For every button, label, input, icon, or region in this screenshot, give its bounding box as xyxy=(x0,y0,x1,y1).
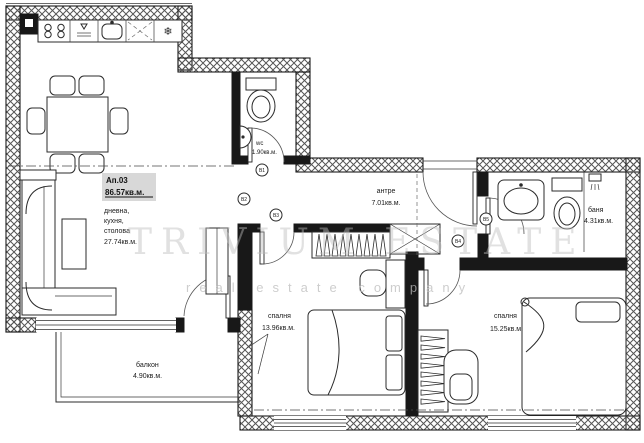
apartment-number: Ап.03 xyxy=(106,176,128,185)
bedroom1-name: спалня xyxy=(268,313,291,320)
living-room-name-1: дневна, xyxy=(104,208,129,215)
living-room-name-2: кухня, xyxy=(104,218,124,225)
marker-b1: В1 xyxy=(259,168,265,174)
chair xyxy=(110,108,128,134)
watermark-line1: TRIVIUM ESTATE xyxy=(128,222,586,263)
coffee-table xyxy=(62,219,86,269)
balcony-area: 4.90кв.м. xyxy=(133,373,162,380)
entrance-door xyxy=(423,161,477,226)
shower-head-icon xyxy=(589,174,601,190)
living-balcony-window xyxy=(36,318,176,332)
wc-room xyxy=(240,78,276,148)
marker-b2: В2 xyxy=(241,197,247,203)
watermark-line2: real estate company xyxy=(186,280,474,295)
windows xyxy=(36,318,576,430)
wc-door xyxy=(248,128,284,162)
apartment-total-area: 86.57кв.м. xyxy=(105,188,144,197)
bedroom2-name: спалня xyxy=(494,313,517,320)
bedroom2-window xyxy=(488,416,576,430)
bathroom-sink-icon xyxy=(498,180,544,220)
chair xyxy=(79,76,104,95)
bedroom2-furniture xyxy=(444,298,626,415)
bath-area: 4.31кв.м. xyxy=(584,218,613,225)
bedroom1-area: 13.96кв.м. xyxy=(262,325,295,332)
floor-plan-image: ❄ xyxy=(0,0,644,443)
armchair xyxy=(444,350,478,404)
balcony-name: балкон xyxy=(136,361,159,369)
chair xyxy=(50,76,75,95)
bath-name: баня xyxy=(588,206,604,214)
bed xyxy=(308,310,405,395)
bed xyxy=(522,298,626,415)
fridge-snowflake-icon: ❄ xyxy=(163,26,172,38)
chair xyxy=(79,154,104,173)
marker-b3: В3 xyxy=(273,213,279,219)
antre-area: 7.01кв.м. xyxy=(371,200,400,207)
chair xyxy=(27,108,45,134)
bedroom1-window xyxy=(274,416,346,430)
antre-name: антре xyxy=(377,188,396,195)
floor-plan-svg: ❄ xyxy=(0,0,644,443)
toilet-icon xyxy=(246,78,276,122)
wc-area: 1.90кв.м. xyxy=(252,150,277,156)
bedroom2-area: 15.25кв.м. xyxy=(490,326,523,333)
watermark: TRIVIUM ESTATE real estate company xyxy=(128,222,586,295)
wc-name: wc xyxy=(255,141,263,147)
dining-table xyxy=(27,76,128,173)
living-room-name-3: столова xyxy=(104,228,130,235)
